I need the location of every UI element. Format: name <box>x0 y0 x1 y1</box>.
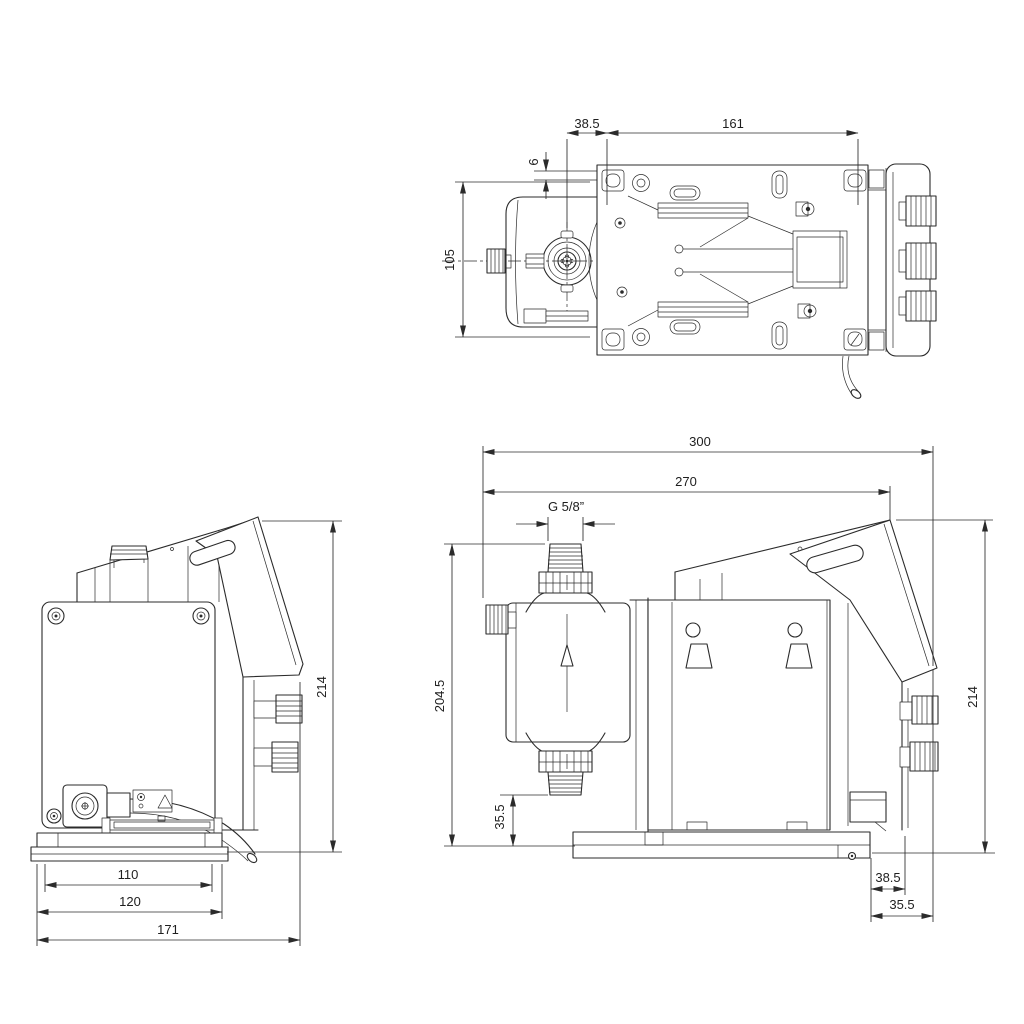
dim-label-270: 270 <box>675 474 697 489</box>
mounting-bracket <box>850 792 886 822</box>
dim-label-35-5-left: 35.5 <box>492 804 507 829</box>
dim-label-6: 6 <box>526 158 541 165</box>
side-view: 300 270 G 5/8” 204.5 35.5 214 <box>432 434 995 922</box>
suction-thread <box>548 772 583 795</box>
dim-label-thread: G 5/8” <box>548 499 584 514</box>
dim-label-38-5-bottom: 38.5 <box>875 870 900 885</box>
power-cable <box>848 356 858 391</box>
dim-label-120: 120 <box>119 894 141 909</box>
dim-label-105: 105 <box>442 249 457 271</box>
dim-label-214-side: 214 <box>965 686 980 708</box>
rear-right-side <box>222 677 302 830</box>
cable-gland-knob <box>910 742 938 771</box>
threaded-plug <box>110 546 148 560</box>
dosing-head-top <box>487 197 597 327</box>
vent-knob-side <box>486 605 508 634</box>
drawing-canvas: 38.5 161 6 105 <box>0 0 1024 1024</box>
dim-label-110: 110 <box>118 867 139 882</box>
rear-base <box>31 833 228 861</box>
warning-label <box>133 790 172 812</box>
mounting-plate <box>597 165 868 355</box>
union-nut <box>539 572 592 593</box>
dim-label-35-5-bottom: 35.5 <box>889 897 914 912</box>
cable-gland-knob <box>912 696 938 724</box>
side-main-body <box>648 600 848 830</box>
dim-label-214-rear: 214 <box>314 676 329 698</box>
dosing-head-side <box>486 544 630 795</box>
vent-knob-top <box>487 249 505 273</box>
dim-label-300: 300 <box>689 434 711 449</box>
cable-gland-knob <box>276 695 302 723</box>
side-mid-housing <box>630 598 648 832</box>
dim-label-161: 161 <box>722 116 744 131</box>
dim-label-38-5-top: 38.5 <box>574 116 599 131</box>
side-right-wall <box>900 682 938 830</box>
top-view: 38.5 161 6 105 <box>442 116 936 400</box>
dim-label-171: 171 <box>157 922 179 937</box>
cable-gland-knob <box>272 742 298 772</box>
union-nut <box>539 751 592 772</box>
rear-view: 214 110 120 171 <box>31 517 342 946</box>
dim-label-204-5: 204.5 <box>432 680 447 713</box>
